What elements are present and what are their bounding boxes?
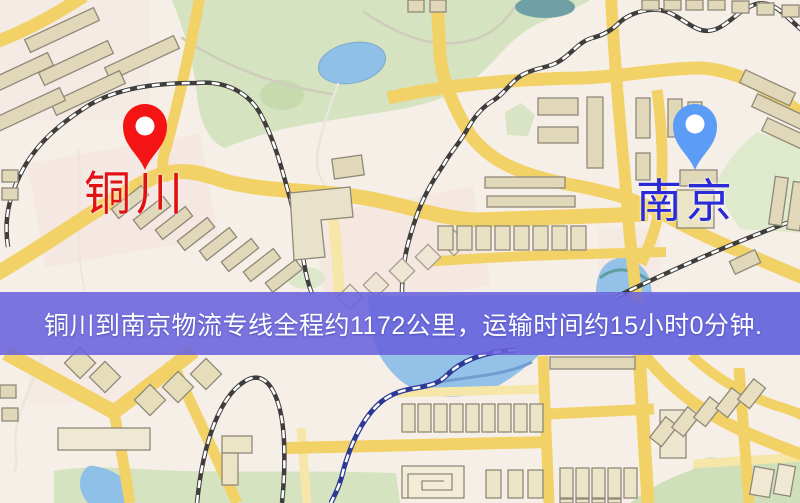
route-info-banner: 铜川到南京物流专线全程约1172公里，运输时间约15小时0分钟. (0, 292, 800, 355)
map-canvas (0, 0, 800, 503)
origin-city-label: 铜川 (84, 170, 188, 217)
destination-pin-icon[interactable] (665, 100, 725, 172)
route-info-text: 铜川到南京物流专线全程约1172公里，运输时间约15小时0分钟. (44, 306, 762, 342)
origin-pin-icon[interactable] (115, 100, 175, 172)
destination-city-label: 南京 (636, 178, 736, 224)
origin-pin-hole (136, 117, 155, 136)
destination-pin-hole (686, 115, 705, 134)
maze-building (402, 466, 464, 498)
map-view[interactable]: 铜川 南京 铜川到南京物流专线全程约1172公里，运输时间约15小时0分钟. (0, 0, 800, 503)
